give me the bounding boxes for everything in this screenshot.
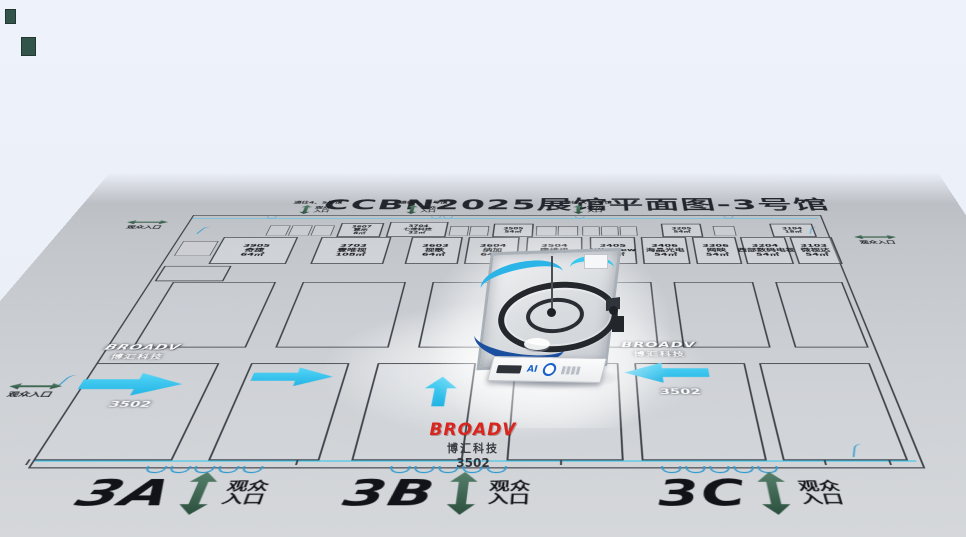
entrance-right: 观众入口 bbox=[840, 235, 914, 245]
broadv-floor-logo-left: BROADV 博汇科技 bbox=[81, 343, 198, 360]
truss-hub bbox=[547, 308, 556, 317]
booth-front-grid bbox=[561, 366, 581, 374]
entrance-arrow-icon bbox=[853, 235, 897, 239]
entrance-label: 观众入口 bbox=[797, 480, 846, 506]
door-arc-icon bbox=[266, 216, 276, 218]
booth-3204: 3204西部数码电视54㎡ bbox=[740, 237, 794, 264]
empty-booth bbox=[155, 266, 232, 281]
door-group bbox=[431, 216, 453, 218]
entrance-arrow-icon bbox=[298, 205, 313, 214]
entrance-label: 观众入口 bbox=[420, 206, 437, 212]
door-arc-icon bbox=[575, 216, 584, 218]
booth-cell bbox=[310, 226, 334, 236]
booth-mast bbox=[551, 256, 553, 312]
entrance-arrow-icon bbox=[445, 472, 479, 515]
booth-sphere bbox=[609, 306, 618, 315]
door-arc-icon bbox=[431, 216, 441, 218]
booth-3905: 3905奇捷64㎡ bbox=[208, 237, 298, 264]
door-arc-icon bbox=[724, 216, 734, 218]
entrance-arrow-icon bbox=[175, 472, 222, 515]
entrance-label: 观众入口 bbox=[587, 206, 602, 212]
door-group bbox=[575, 216, 584, 218]
entrance-arrow-icon bbox=[406, 205, 419, 214]
entrance-arrow-icon bbox=[755, 472, 793, 515]
gate-hall45-right: 通往4、5号馆 观众入口 bbox=[546, 200, 630, 214]
gate-hall45-mid: 通往4、5号馆 观众入口 bbox=[378, 200, 465, 214]
entrance-arrow-icon bbox=[126, 220, 170, 224]
booth-cell bbox=[713, 226, 737, 236]
section-3a: 3A 观众入口 bbox=[67, 472, 273, 515]
floor-plan-canvas: CCBN2025展馆平面图-3号馆 通往4、5号馆 观众入口 通往4、5号馆 观… bbox=[0, 0, 966, 537]
booth-3607: 3607慧示8㎡ bbox=[336, 223, 384, 237]
door-group bbox=[724, 216, 734, 218]
booth-furniture bbox=[524, 338, 550, 350]
booth-front-fascia: AI bbox=[487, 356, 607, 383]
door-group bbox=[266, 216, 276, 218]
corner-marker bbox=[5, 9, 16, 24]
ai-label: AI bbox=[526, 364, 539, 374]
booth-3703: 3703壹唯视108㎡ bbox=[310, 237, 391, 264]
booth-equipment bbox=[612, 316, 624, 332]
booth-round-logo bbox=[542, 363, 558, 376]
entrance-arrow-icon bbox=[573, 205, 584, 214]
empty-booth bbox=[673, 282, 770, 348]
entrance-left-mid: 观众入口 bbox=[0, 383, 81, 398]
section-3b: 3B 观众入口 bbox=[339, 472, 532, 515]
broadv-billboard: BROADV 博汇科技 3502 bbox=[417, 420, 529, 470]
entrance-label: 观众入口 bbox=[313, 206, 331, 212]
corner-marker bbox=[21, 37, 36, 56]
gate-hall45-left: 通往4、5号馆 观众入口 bbox=[271, 200, 360, 214]
entrance-left-top: 观众入口 bbox=[108, 220, 183, 229]
booth-roof-unit bbox=[584, 254, 608, 269]
entrance-label: 观众入口 bbox=[487, 480, 530, 506]
highlight-booth-3502: AI bbox=[474, 246, 624, 386]
section-3c: 3C 观众入口 bbox=[656, 472, 848, 515]
booth-3104: 310418㎡ bbox=[769, 224, 817, 237]
booth-number-left: 3502 bbox=[76, 399, 183, 408]
booth-3306: 3306网映54㎡ bbox=[692, 237, 743, 264]
entrance-arrow-icon bbox=[7, 383, 64, 389]
booth-logo-strip bbox=[496, 365, 522, 373]
door-arc-icon bbox=[443, 216, 453, 218]
